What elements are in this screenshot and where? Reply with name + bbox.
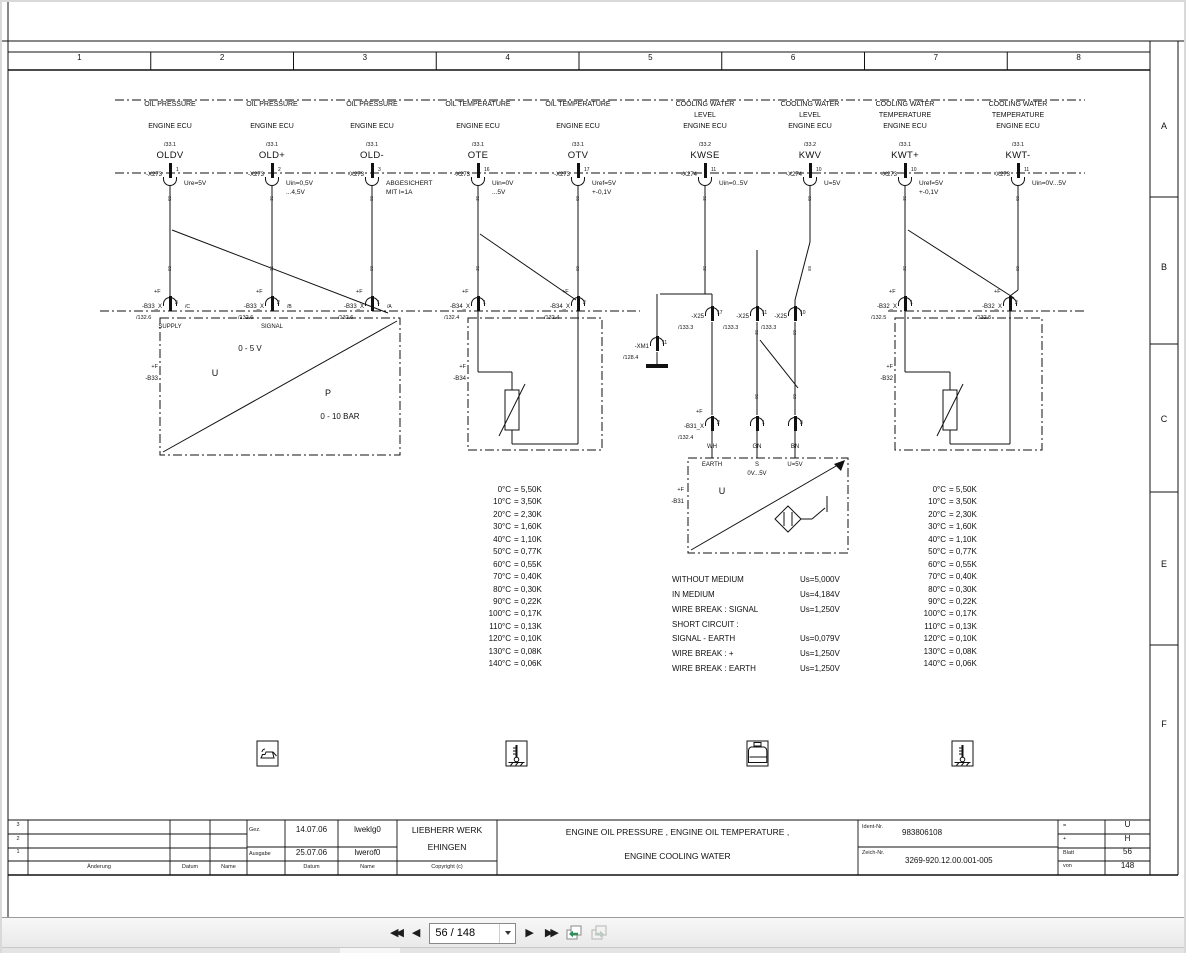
- device-sheet-reference: /132.4: [678, 435, 710, 441]
- b33-plusf: +F: [138, 364, 158, 370]
- sheet-reference: /33.1: [140, 142, 200, 148]
- schematic-labels: 0 - 5 V U P 0 - 10 BAR +F -B33 +F -B34 +…: [0, 0, 1186, 953]
- plus-f-label: +F: [154, 289, 161, 295]
- resistance-table-1: 0°C= 5,50K10°C= 3,50K20°C= 2,30K30°C= 1,…: [481, 486, 551, 673]
- temp-value: 50°C: [916, 548, 946, 557]
- previous-page-button[interactable]: ◀: [410, 923, 422, 943]
- device-pin-sublabel: BN: [769, 444, 821, 451]
- signal-note: +-0,1V: [592, 189, 611, 196]
- device-pin-name: -B33_X: [110, 304, 162, 311]
- wire-number: 88: [807, 196, 812, 201]
- device-sheet-reference: /132.6: [136, 315, 168, 321]
- resistance-value: = 2,30K: [514, 510, 542, 519]
- gez-label: Gez.: [249, 827, 261, 833]
- next-view-button[interactable]: [590, 924, 608, 942]
- mini-table-value: 148: [1105, 862, 1150, 871]
- temp-value: 20°C: [916, 511, 946, 520]
- device-socket-icon: [1003, 297, 1017, 306]
- device-sheet-reference: /132.5: [976, 315, 1008, 321]
- device-socket-icon: [471, 297, 485, 306]
- temp-value: 120°C: [916, 635, 946, 644]
- connector-socket-icon: [698, 177, 712, 186]
- device-pin-name: -B33_X: [212, 304, 264, 311]
- ausgabe-name: lwerof0: [338, 849, 397, 858]
- temp-value: 10°C: [481, 498, 511, 507]
- sheet-reference: /33.1: [988, 142, 1048, 148]
- pin-number: 11: [711, 168, 716, 174]
- resistance-value: = 0,77K: [514, 547, 542, 556]
- signal-note: +-0,1V: [919, 189, 938, 196]
- temp-value: 60°C: [916, 561, 946, 570]
- device-sheet-reference: /132.6: [238, 315, 270, 321]
- signal-note: ...5V: [492, 189, 505, 196]
- zone-letter-C: C: [1150, 414, 1178, 424]
- resistance-value: = 1,10K: [949, 535, 977, 544]
- drawing-title-line1: ENGINE OIL PRESSURE , ENGINE OIL TEMPERA…: [497, 828, 858, 838]
- wire-number: 52: [475, 196, 480, 201]
- b31-plusf: +F: [664, 487, 684, 493]
- resistance-value: = 0,40K: [514, 572, 542, 581]
- connector-socket-icon: [571, 177, 585, 186]
- connector-socket-icon: [265, 177, 279, 186]
- device-pin-name: -B34_X: [518, 304, 570, 311]
- connector-pin: [1017, 163, 1020, 178]
- device-socket-icon: [650, 337, 664, 346]
- chevron-down-icon: [505, 931, 511, 935]
- zone-letter-B: B: [1150, 262, 1178, 272]
- connector-pin: [577, 163, 580, 178]
- plus-f-label: +F: [462, 289, 469, 295]
- resistance-value: = 0,55K: [514, 560, 542, 569]
- sheet-reference: /33.1: [342, 142, 402, 148]
- temp-value: 140°C: [481, 660, 511, 669]
- temp-value: 80°C: [481, 586, 511, 595]
- zone-letter-E: E: [1150, 559, 1178, 569]
- ruler-column-7: 7: [865, 54, 1008, 63]
- b33-name: -B33: [130, 376, 158, 383]
- resistance-value: = 0,06K: [514, 659, 542, 668]
- condition-voltage: Us=0,079V: [800, 634, 840, 643]
- b31-name: -B31: [656, 499, 684, 506]
- temp-value: 30°C: [916, 523, 946, 532]
- connector-name: -X273: [849, 172, 897, 179]
- pin-number: 3: [378, 168, 381, 174]
- device-pin-name: -B34_X: [418, 304, 470, 311]
- connector-name: -X274: [649, 172, 697, 179]
- zeich-label: Zeich-Nr.: [862, 850, 884, 856]
- ruler-column-2: 2: [151, 54, 294, 63]
- condition-label: IN MEDIUM: [672, 591, 800, 600]
- signal-name: OTV: [538, 151, 618, 162]
- signal-note: Uref=5V: [592, 180, 616, 187]
- sheet-reference: /33.2: [675, 142, 735, 148]
- device-pin-name: -B31_X: [652, 424, 704, 431]
- temp-value: 110°C: [481, 623, 511, 632]
- b31-u5-label: U=5V: [777, 462, 813, 469]
- signal-note: ...4,5V: [286, 189, 305, 196]
- signal-name: KWT-: [978, 151, 1058, 162]
- device-socket-icon: [265, 297, 279, 306]
- device-socket-icon: [365, 297, 379, 306]
- b32-name: -B32: [865, 376, 893, 383]
- condition-label: WIRE BREAK : EARTH: [672, 665, 800, 674]
- plus-f-label: +F: [889, 289, 896, 295]
- device-pin-name: -XM1: [597, 344, 649, 351]
- next-page-button[interactable]: ▶: [523, 923, 535, 943]
- resistance-value: = 0,06K: [949, 659, 977, 668]
- device-pin-tag: /A: [387, 305, 392, 311]
- wire-number: 88: [369, 196, 374, 201]
- resistance-value: = 0,22K: [514, 597, 542, 606]
- b34-name: -B34: [438, 376, 466, 383]
- temp-value: 130°C: [916, 648, 946, 657]
- temp-value: 70°C: [481, 573, 511, 582]
- wire-number: 52: [702, 196, 707, 201]
- signal-note: Uref=5V: [919, 180, 943, 187]
- sheet-reference: /33.1: [242, 142, 302, 148]
- resistance-value: = 0,55K: [949, 560, 977, 569]
- wire-number: 52: [269, 196, 274, 201]
- connector-socket-icon: [803, 177, 817, 186]
- b33-p-symbol: P: [318, 388, 338, 398]
- temp-value: 40°C: [916, 536, 946, 545]
- resistance-value: = 0,13K: [514, 622, 542, 631]
- condition-label: WIRE BREAK : SIGNAL: [672, 606, 800, 615]
- resistance-value: = 0,08K: [514, 647, 542, 656]
- mini-table-key: +: [1063, 836, 1066, 842]
- ruler-column-5: 5: [579, 54, 722, 63]
- signal-note: Uin=0,5V: [286, 180, 313, 187]
- wire-number: 52: [902, 196, 907, 201]
- connector-socket-icon: [898, 177, 912, 186]
- device-sheet-reference: /132.6: [338, 315, 370, 321]
- condition-voltage: Us=1,250V: [800, 664, 840, 673]
- zone-letter-A: A: [1150, 121, 1178, 131]
- ident-label: Ident-Nr.: [862, 824, 883, 830]
- plus-f-label: +F: [994, 289, 1001, 295]
- temp-value: 60°C: [481, 561, 511, 570]
- signal-note: Uin=0V: [492, 180, 514, 187]
- device-socket-icon: [788, 417, 802, 426]
- b33-u-symbol: U: [205, 368, 225, 378]
- condition-label: SHORT CIRCUIT :: [672, 621, 800, 630]
- ausgabe-date: 25.07.06: [285, 849, 338, 858]
- b31-earth-label: EARTH: [694, 462, 730, 469]
- plus-f-label: +F: [696, 409, 703, 415]
- wire-number: 52: [702, 266, 707, 271]
- company-line1: LIEBHERR WERK: [397, 826, 497, 836]
- connector-name: -X273: [216, 172, 264, 179]
- revision-row-3: 3: [8, 822, 28, 828]
- pin-number: 11: [1024, 168, 1029, 174]
- viewer-toolbar: ◀◀ ◀ ▶ ▶▶: [0, 917, 1186, 948]
- device-sheet-reference: /132.4: [544, 315, 576, 321]
- status-bar: [0, 947, 1186, 953]
- wire-number: 88: [575, 196, 580, 201]
- device-socket-icon: [898, 297, 912, 306]
- temp-value: 80°C: [916, 586, 946, 595]
- b31-u-symbol: U: [714, 486, 730, 496]
- wire-number: 52: [902, 266, 907, 271]
- pin-number: 17: [584, 168, 590, 174]
- connector-pin: [169, 163, 172, 178]
- resistance-value: = 1,60K: [949, 522, 977, 531]
- pin-number: 16: [484, 168, 490, 174]
- temp-value: 140°C: [916, 660, 946, 669]
- b32-plusf: +F: [873, 364, 893, 370]
- condition-label: SIGNAL - EARTH: [672, 635, 800, 644]
- device-pin-name: -B32_X: [845, 304, 897, 311]
- signal-name: OLDV: [130, 151, 210, 162]
- resistance-table-2: 0°C= 5,50K10°C= 3,50K20°C= 2,30K30°C= 1,…: [916, 486, 986, 673]
- device-sheet-reference: /132.5: [871, 315, 903, 321]
- resistance-value: = 0,30K: [514, 585, 542, 594]
- wire-number: 88: [1015, 196, 1020, 201]
- device-sheet-reference: /132.4: [444, 315, 476, 321]
- resistance-value: = 1,60K: [514, 522, 542, 531]
- ausgabe-label: Ausgabe: [249, 851, 271, 857]
- company-line2: EHINGEN: [397, 843, 497, 853]
- connector-name: -X273: [522, 172, 570, 179]
- resistance-value: = 3,50K: [514, 497, 542, 506]
- condition-voltage: Us=5,000V: [800, 575, 840, 584]
- resistance-value: = 0,08K: [949, 647, 977, 656]
- condition-voltage: Us=1,250V: [800, 649, 840, 658]
- resistance-value: = 0,10K: [949, 634, 977, 643]
- connector-socket-icon: [163, 177, 177, 186]
- datum2-header: Datum: [285, 864, 338, 870]
- zone-letter-F: F: [1150, 719, 1178, 729]
- resistance-value: = 0,13K: [949, 622, 977, 631]
- resistance-value: = 0,40K: [949, 572, 977, 581]
- resistance-value: = 3,50K: [949, 497, 977, 506]
- resistance-value: = 5,50K: [949, 485, 977, 494]
- wire-number: 88: [807, 266, 812, 271]
- pin-number: 10: [911, 168, 917, 174]
- wire-number: 52: [754, 330, 759, 335]
- temp-value: 130°C: [481, 648, 511, 657]
- temp-value: 120°C: [481, 635, 511, 644]
- name2-header: Name: [338, 864, 397, 870]
- connector-name: -X273: [316, 172, 364, 179]
- temp-value: 40°C: [481, 536, 511, 545]
- device-socket-icon: [705, 417, 719, 426]
- wire-number: 88: [792, 394, 797, 399]
- connector-socket-icon: [365, 177, 379, 186]
- b33-pressure-range: 0 - 10 BAR: [295, 413, 385, 422]
- wire-number: 50: [754, 394, 759, 399]
- ident-number: 983806108: [902, 829, 942, 838]
- first-page-button[interactable]: ◀◀: [388, 923, 403, 943]
- device-sheet-reference: /128.4: [623, 355, 655, 361]
- drawing-title-line2: ENGINE COOLING WATER: [497, 852, 858, 862]
- signal-name: KWV: [770, 151, 850, 162]
- wire-number: 52: [475, 266, 480, 271]
- resistance-value: = 1,10K: [514, 535, 542, 544]
- device-socket-icon: [571, 297, 585, 306]
- zeich-number: 3269-920.12.00.001-005: [905, 857, 993, 866]
- signal-column-ecu: ENGINE ECU: [943, 123, 1093, 131]
- device-socket-icon: [788, 307, 802, 316]
- device-pin-sublabel: SIGNAL: [246, 324, 298, 331]
- device-pin-name: -X25: [735, 314, 787, 321]
- temp-value: 0°C: [481, 486, 511, 495]
- plus-f-label: +F: [562, 289, 569, 295]
- sheet-reference: /33.2: [780, 142, 840, 148]
- device-sheet-reference: /133.3: [723, 325, 755, 331]
- device-socket-icon: [163, 297, 177, 306]
- wire-number: 88: [575, 266, 580, 271]
- connector-name: -X273: [962, 172, 1010, 179]
- signal-name: OTE: [438, 151, 518, 162]
- temp-value: 30°C: [481, 523, 511, 532]
- temp-value: 70°C: [916, 573, 946, 582]
- condition-voltage: Us=4,184V: [800, 590, 840, 599]
- wire-number: 88: [369, 266, 374, 271]
- pin-number: 10: [816, 168, 822, 174]
- temp-value: 10°C: [916, 498, 946, 507]
- status-segment: [340, 948, 400, 953]
- device-pin-name: -B33_X: [312, 304, 364, 311]
- mini-table-key: =: [1063, 823, 1066, 829]
- signal-note: Uin=0V...5V: [1032, 180, 1066, 187]
- datum-header: Datum: [170, 864, 210, 870]
- gez-name: lweklg0: [338, 826, 397, 835]
- device-socket-icon: [750, 417, 764, 426]
- b33-voltage-range: 0 - 5 V: [210, 345, 290, 354]
- pin-number: 2: [278, 168, 281, 174]
- resistance-value: = 5,50K: [514, 485, 542, 494]
- ruler-column-3: 3: [294, 54, 437, 63]
- resistance-value: = 0,30K: [949, 585, 977, 594]
- connector-socket-icon: [1011, 177, 1025, 186]
- wire-number: 85: [167, 196, 172, 201]
- resistance-value: = 0,10K: [514, 634, 542, 643]
- wire-number: 85: [167, 266, 172, 271]
- page-dropdown-button[interactable]: [499, 924, 515, 943]
- plus-f-label: +F: [256, 289, 263, 295]
- mini-table-value: 56: [1105, 848, 1150, 857]
- signal-note: MIT I=1A: [386, 189, 412, 196]
- pdf-viewer: 0 - 5 V U P 0 - 10 BAR +F -B33 +F -B34 +…: [0, 0, 1186, 953]
- device-pin-name: -B32_X: [950, 304, 1002, 311]
- device-pin-sublabel: SUPPLY: [144, 324, 196, 331]
- connector-pin: [477, 163, 480, 178]
- temp-value: 100°C: [481, 610, 511, 619]
- pin-number: 1: [176, 168, 179, 174]
- mini-table-value: U: [1105, 821, 1150, 830]
- last-page-button[interactable]: ▶▶: [543, 923, 558, 943]
- aenderung-header: Änderung: [28, 864, 170, 870]
- connector-name: -X273: [422, 172, 470, 179]
- b31-s-label: S: [749, 462, 765, 469]
- connector-pin: [904, 163, 907, 178]
- device-pin-tag: /C: [185, 305, 190, 311]
- sensor-conditions-table: WITHOUT MEDIUMUs=5,000VIN MEDIUMUs=4,184…: [672, 576, 902, 680]
- sheet-reference: /33.1: [448, 142, 508, 148]
- mini-table-key: Blatt: [1063, 850, 1074, 856]
- ruler-column-1: 1: [8, 54, 151, 63]
- signal-column-title: COOLING WATER: [943, 101, 1093, 109]
- b31-s-range: 0V...5V: [735, 471, 779, 478]
- signal-note: U=5V: [824, 180, 840, 187]
- signal-name: KWSE: [665, 151, 745, 162]
- resistance-value: = 0,77K: [949, 547, 977, 556]
- connector-name: -X273: [114, 172, 162, 179]
- ruler-column-6: 6: [722, 54, 865, 63]
- resistance-value: = 2,30K: [949, 510, 977, 519]
- copyright-label: Copyright (c): [397, 864, 497, 870]
- wire-number: 88: [1015, 266, 1020, 271]
- condition-voltage: Us=1,250V: [800, 605, 840, 614]
- signal-note: Ure=5V: [184, 180, 206, 187]
- resistance-value: = 0,22K: [949, 597, 977, 606]
- page-number-input[interactable]: [430, 924, 499, 943]
- previous-view-button[interactable]: [565, 924, 583, 942]
- temp-value: 100°C: [916, 610, 946, 619]
- revision-row-2: 2: [8, 836, 28, 842]
- signal-name: OLD+: [232, 151, 312, 162]
- connector-name: -X274: [754, 172, 802, 179]
- connector-pin: [704, 163, 707, 178]
- device-sheet-reference: /133.3: [678, 325, 710, 331]
- connector-pin: [271, 163, 274, 178]
- device-pin-tag: /B: [287, 305, 292, 311]
- connector-socket-icon: [471, 177, 485, 186]
- signal-name: KWT+: [865, 151, 945, 162]
- ruler-column-8: 8: [1007, 54, 1150, 63]
- b34-plusf: +F: [446, 364, 466, 370]
- plus-f-label: +F: [356, 289, 363, 295]
- gez-date: 14.07.06: [285, 826, 338, 835]
- temp-value: 90°C: [916, 598, 946, 607]
- sheet-reference: /33.1: [875, 142, 935, 148]
- connector-pin: [371, 163, 374, 178]
- temp-value: 0°C: [916, 486, 946, 495]
- page-number-combobox[interactable]: [429, 923, 516, 944]
- temp-value: 90°C: [481, 598, 511, 607]
- resistance-value: = 0,17K: [949, 609, 977, 618]
- signal-note: Uin=0..5V: [719, 180, 748, 187]
- wire-number: 52: [269, 266, 274, 271]
- condition-label: WIRE BREAK : +: [672, 650, 800, 659]
- mini-table-key: von: [1063, 863, 1072, 869]
- resistance-value: = 0,17K: [514, 609, 542, 618]
- revision-row-1: 1: [8, 849, 28, 855]
- sheet-reference: /33.1: [548, 142, 608, 148]
- temp-value: 50°C: [481, 548, 511, 557]
- temp-value: 110°C: [916, 623, 946, 632]
- signal-name: OLD-: [332, 151, 412, 162]
- temp-value: 20°C: [481, 511, 511, 520]
- condition-label: WITHOUT MEDIUM: [672, 576, 800, 585]
- wire-number: 88: [792, 330, 797, 335]
- ruler-column-4: 4: [436, 54, 579, 63]
- signal-note: ABGESICHERT: [386, 180, 432, 187]
- signal-column-title2: TEMPERATURE: [943, 112, 1093, 120]
- mini-table-value: H: [1105, 835, 1150, 844]
- device-sheet-reference: /133.3: [761, 325, 793, 331]
- name-header: Name: [210, 864, 247, 870]
- connector-pin: [809, 163, 812, 178]
